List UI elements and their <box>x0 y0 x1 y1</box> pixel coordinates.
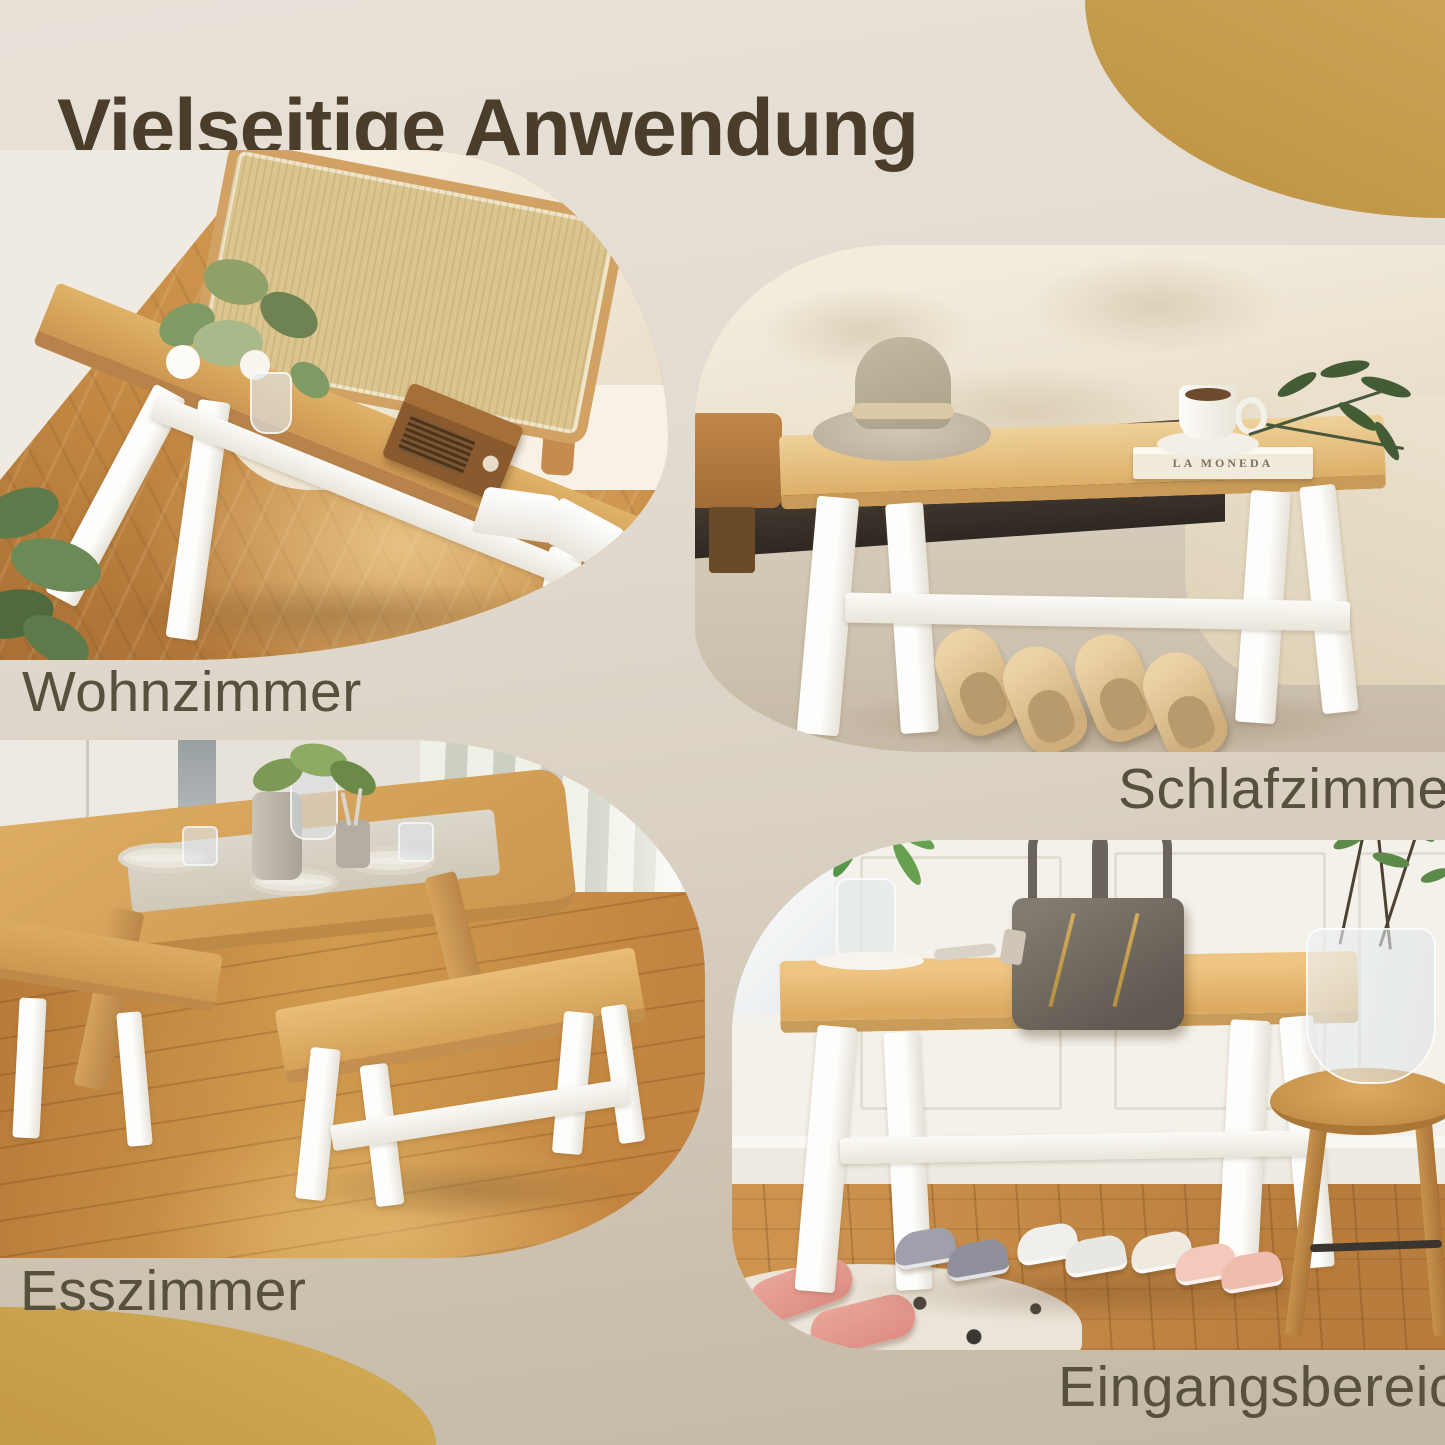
photo-wohnzimmer <box>0 150 668 660</box>
radio-speaker-grill <box>397 414 476 475</box>
olive-sprig <box>1235 340 1425 485</box>
label-schlafzimmer: Schlafzimmer <box>1118 756 1445 822</box>
photo-esszimmer <box>0 740 705 1258</box>
felt-hat-band <box>852 403 954 419</box>
gold-corner-bottom-left <box>0 1307 436 1445</box>
glass-jar-vase <box>1306 928 1436 1084</box>
photo-eingangsbereich <box>732 840 1445 1350</box>
bed-frame-rail <box>695 413 782 508</box>
decor-tray <box>816 952 924 970</box>
bag-zipper <box>1112 913 1139 1007</box>
water-glass <box>182 826 218 866</box>
bag-zipper <box>1048 913 1075 1007</box>
water-glass <box>398 822 434 862</box>
gold-corner-top-right <box>1085 0 1445 218</box>
sprig-leaf <box>1371 419 1403 463</box>
label-eingangsbereich: Eingangsbereich <box>1058 1354 1445 1420</box>
sprig-leaf <box>1275 368 1320 401</box>
label-wohnzimmer: Wohnzimmer <box>22 659 362 725</box>
sprig-leaf <box>1335 398 1380 435</box>
potted-plant-leaves <box>0 470 150 660</box>
photo-schlafzimmer: LA MONEDA <box>695 245 1445 752</box>
tote-bag <box>1012 898 1184 1030</box>
white-flower <box>166 345 200 379</box>
table-greenery <box>242 742 372 808</box>
bed-frame-leg <box>709 507 755 573</box>
window-light <box>560 740 705 915</box>
poster-canvas: Vielseitige Anwendung <box>0 0 1445 1445</box>
coffee-surface <box>1185 388 1231 401</box>
label-esszimmer: Esszimmer <box>20 1258 306 1324</box>
bench-shadow <box>300 1160 640 1220</box>
glass-vase <box>250 372 292 434</box>
bag-tag <box>999 928 1026 965</box>
flower-bouquet <box>148 250 333 400</box>
utensil-cup <box>336 820 370 868</box>
